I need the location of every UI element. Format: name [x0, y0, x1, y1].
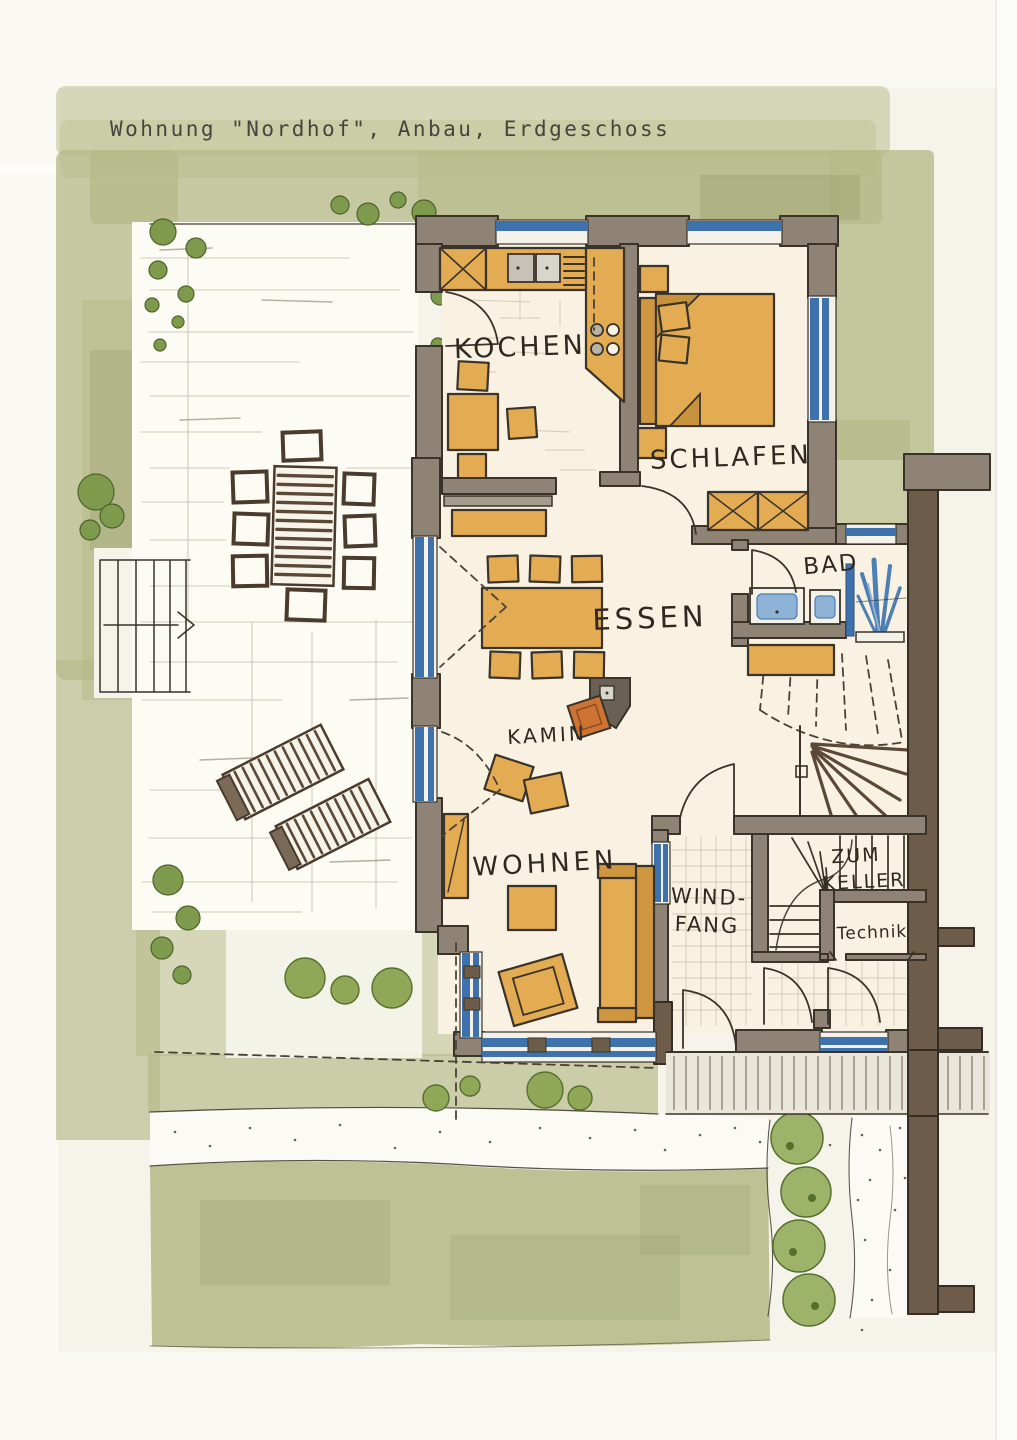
label-kochen: KOCHEN: [453, 330, 586, 366]
label-kamin: KAMIN: [507, 721, 588, 749]
nightstand: [640, 266, 668, 292]
pillow: [659, 335, 690, 364]
label-zum-keller-2: KELLER: [822, 869, 906, 895]
floor-plan-drawing: KOCHEN SCHLAFEN ESSEN KAMIN WOHNEN BAD W…: [0, 0, 1017, 1440]
label-windfang-1: WIND-: [670, 884, 747, 911]
label-windfang-2: FANG: [674, 912, 739, 938]
dining-table: [482, 588, 602, 648]
pillow: [658, 302, 689, 332]
sink: [508, 254, 534, 282]
entrance-decking: [666, 1050, 990, 1116]
garden-table: [271, 466, 336, 586]
label-essen: ESSEN: [592, 599, 708, 637]
wardrobe: [708, 492, 808, 530]
furniture-dining: [482, 555, 604, 678]
plan-title: Wohnung "Nordhof", Anbau, Erdgeschoss: [110, 117, 670, 141]
coffee-table: [508, 886, 556, 930]
label-zum-keller-1: ZUM: [831, 844, 881, 869]
label-technik: Technik: [835, 922, 907, 944]
label-schlafen: SCHLAFEN: [649, 440, 812, 476]
bench: [748, 645, 834, 675]
label-bad: BAD: [802, 550, 859, 581]
floor-plan-scan: KOCHEN SCHLAFEN ESSEN KAMIN WOHNEN BAD W…: [0, 0, 1017, 1440]
sofa: [598, 864, 654, 1022]
